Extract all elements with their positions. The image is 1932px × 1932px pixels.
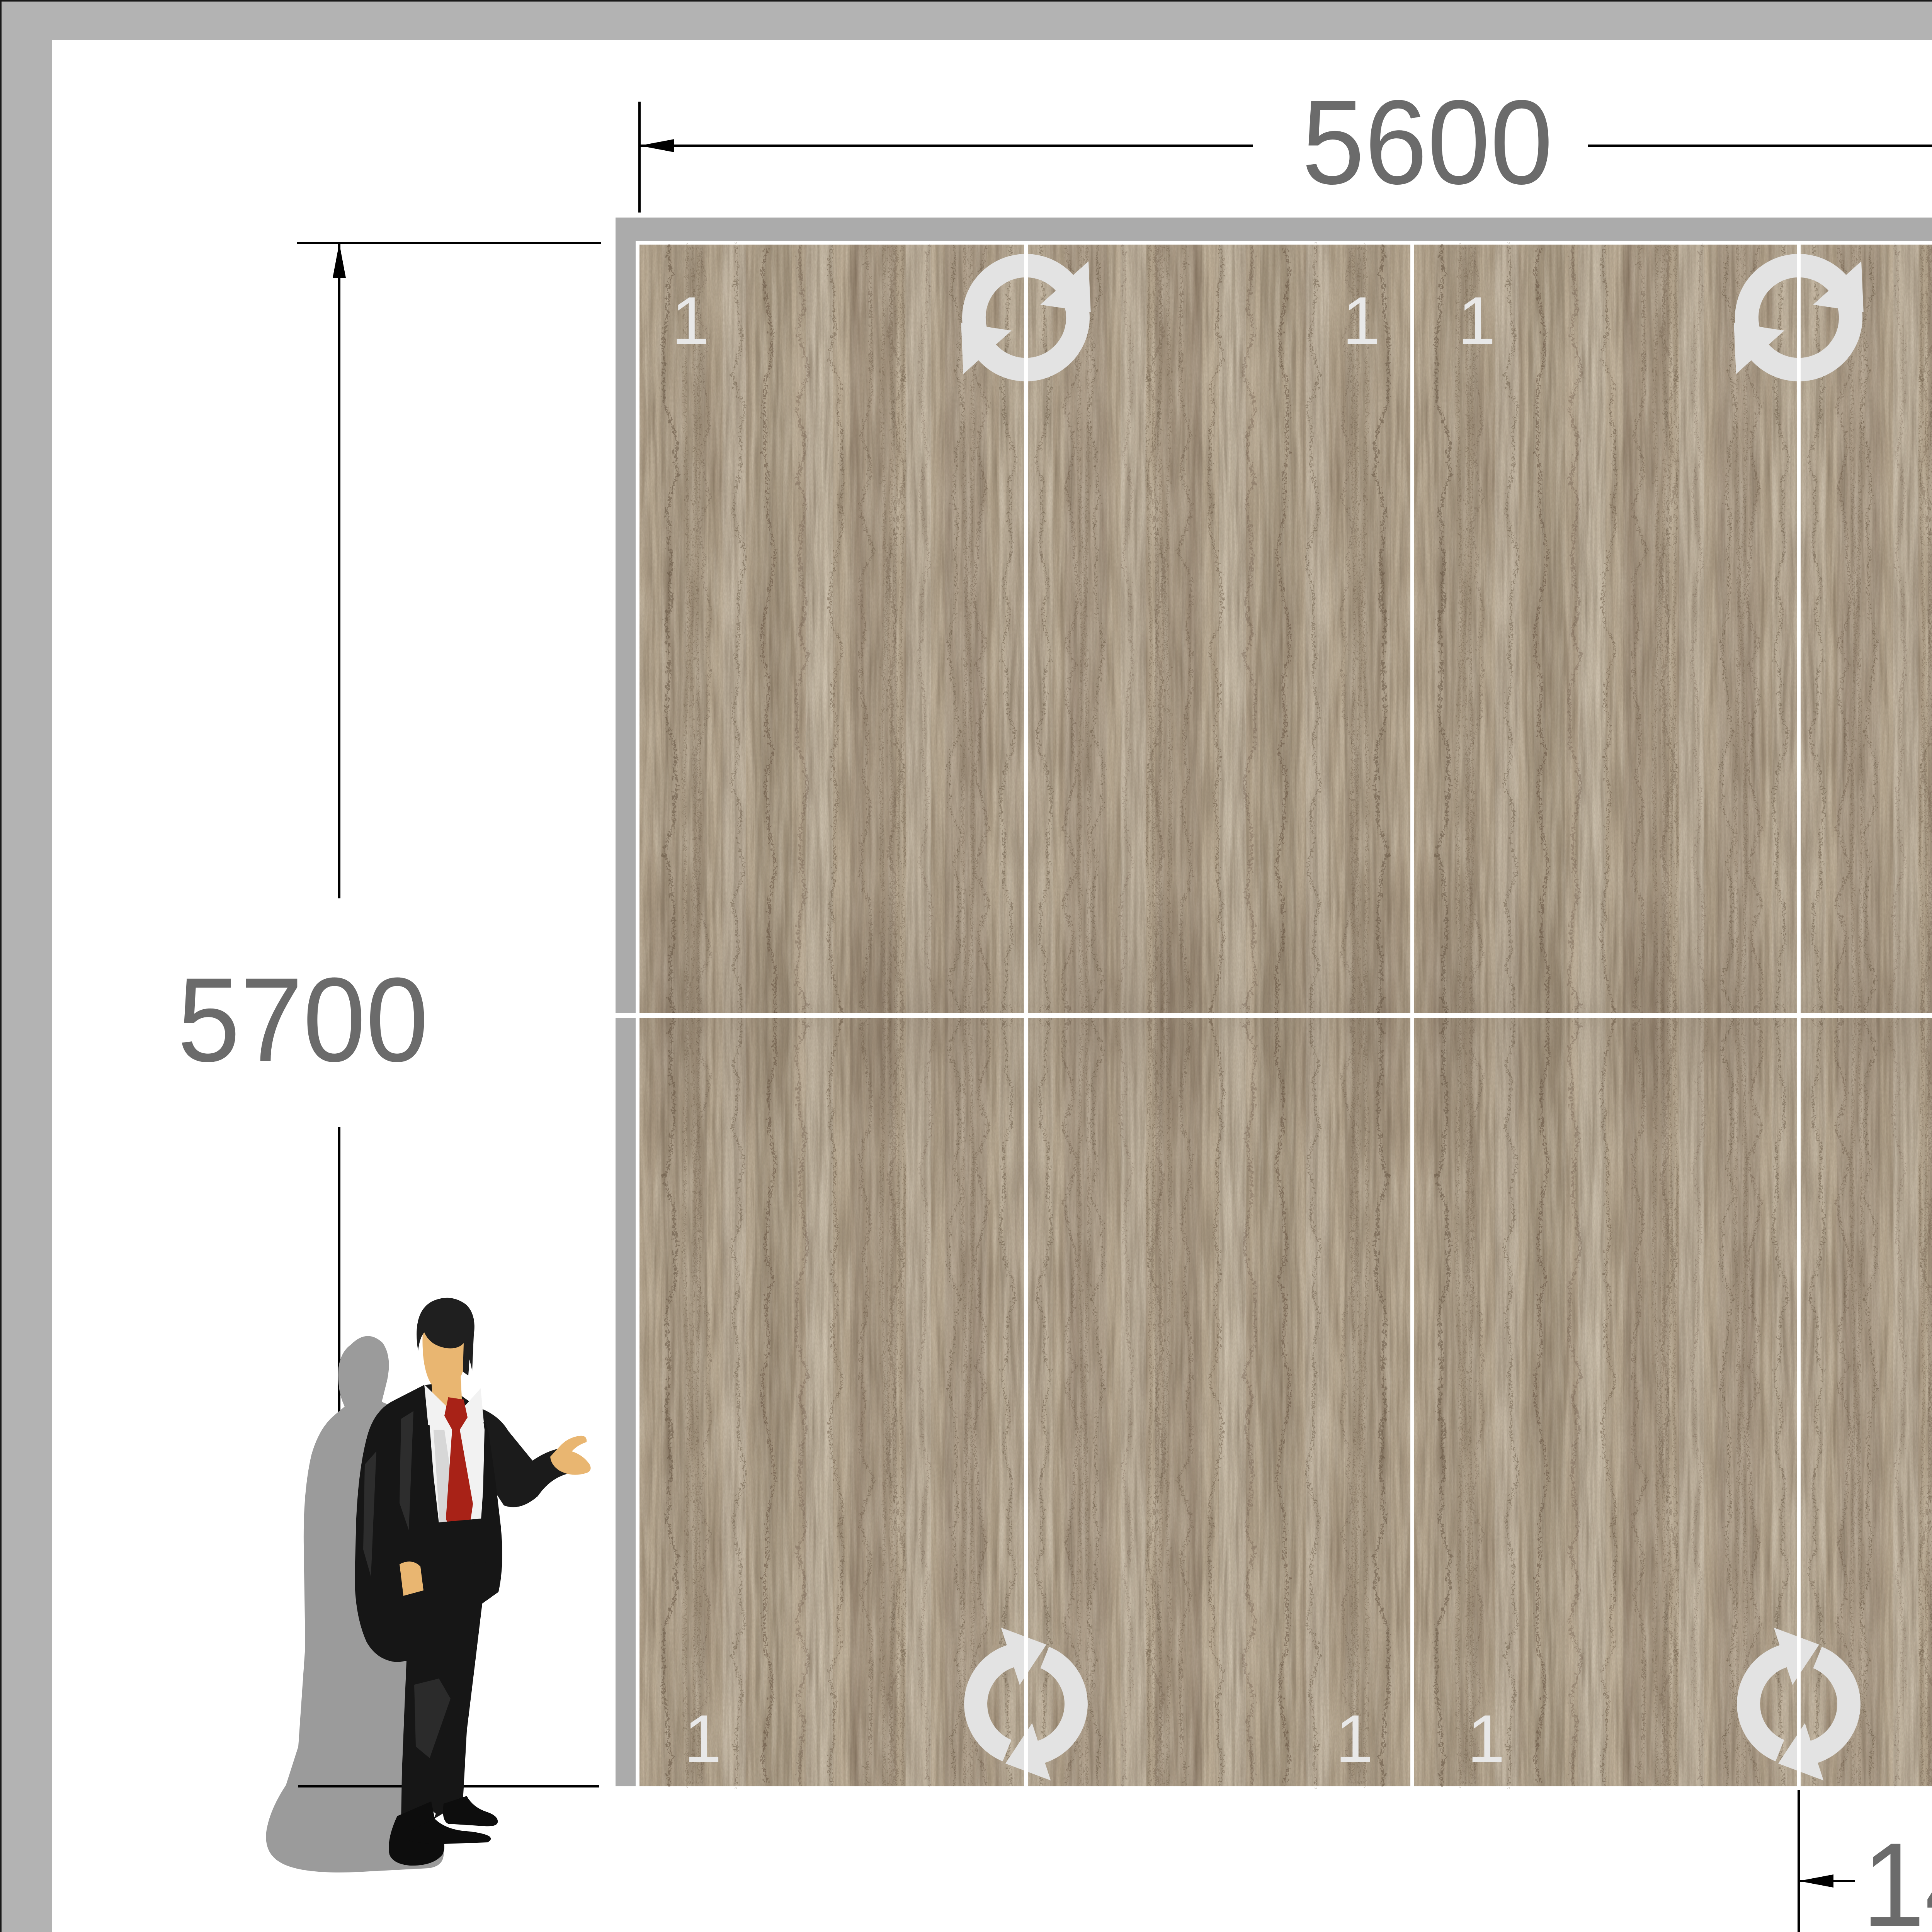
svg-text:1: 1 — [1467, 1701, 1505, 1777]
svg-text:1: 1 — [1335, 1701, 1373, 1777]
svg-text:5700: 5700 — [177, 952, 429, 1087]
svg-text:1: 1 — [672, 283, 709, 359]
svg-text:1: 1 — [684, 1701, 721, 1777]
svg-text:1: 1 — [1342, 283, 1380, 359]
svg-text:1400: 1400 — [1862, 1818, 1932, 1932]
svg-text:5600: 5600 — [1302, 75, 1553, 209]
svg-text:1: 1 — [1458, 283, 1495, 359]
